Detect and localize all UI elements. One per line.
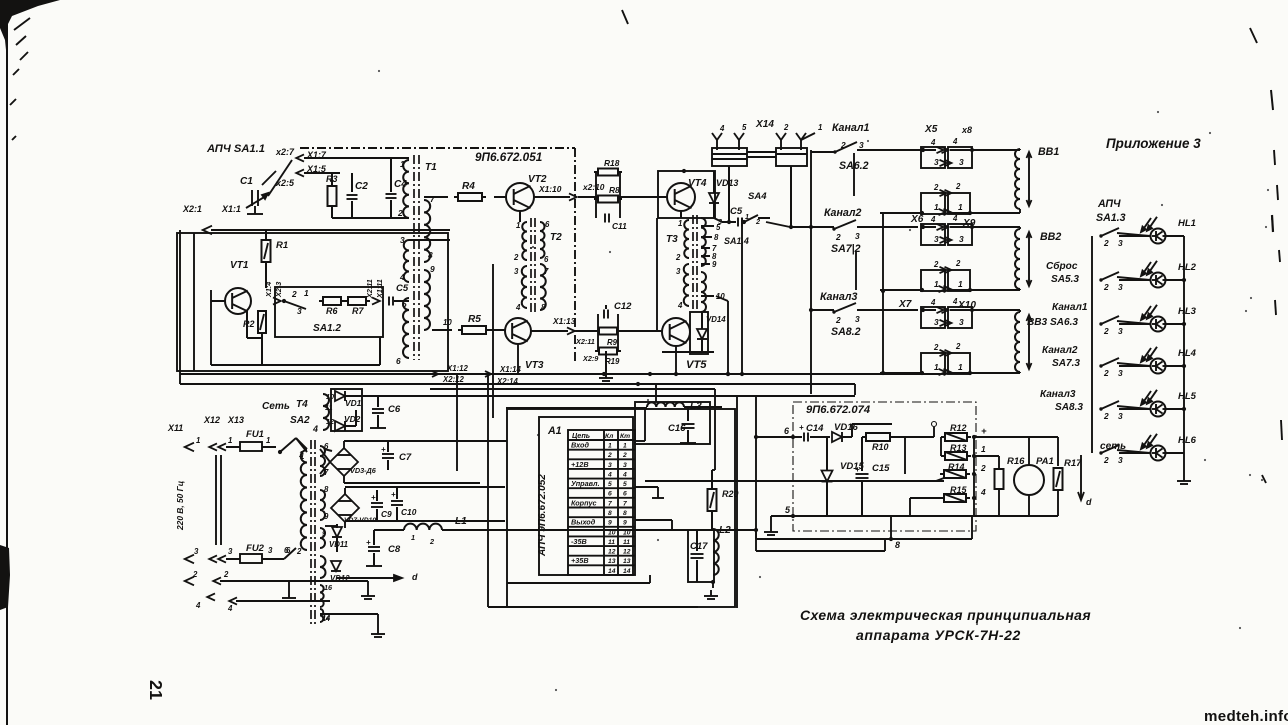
svg-text:Канал3: Канал3 [1040, 389, 1076, 400]
svg-text:R10: R10 [872, 442, 888, 452]
svg-text:9: 9 [430, 264, 435, 274]
svg-text:2: 2 [397, 208, 403, 218]
svg-text:+12В: +12В [571, 460, 589, 469]
svg-text:Выход: Выход [571, 518, 596, 527]
svg-text:3: 3 [934, 157, 939, 167]
svg-text:1: 1 [196, 436, 200, 445]
svg-text:1: 1 [981, 444, 986, 454]
svg-text:+: + [855, 465, 860, 474]
svg-text:1: 1 [516, 221, 520, 230]
svg-text:+: + [366, 538, 371, 547]
svg-text:R20: R20 [722, 489, 738, 499]
svg-text:9: 9 [712, 260, 717, 269]
svg-text:3: 3 [934, 234, 939, 244]
svg-text:1: 1 [623, 443, 627, 450]
svg-text:3: 3 [228, 547, 233, 556]
svg-text:8: 8 [428, 250, 433, 260]
svg-text:SA2: SA2 [290, 415, 310, 426]
svg-text:x2:7: x2:7 [275, 147, 295, 157]
svg-text:4: 4 [952, 214, 958, 223]
svg-text:X2:11: X2:11 [365, 279, 374, 299]
svg-text:3: 3 [1118, 368, 1123, 378]
svg-text:3: 3 [1118, 411, 1123, 421]
svg-text:12: 12 [623, 549, 631, 556]
svg-text:x2:5: x2:5 [275, 178, 295, 188]
svg-text:1: 1 [934, 362, 939, 372]
svg-text:1: 1 [745, 212, 749, 221]
svg-text:11: 11 [608, 539, 615, 546]
svg-text:Канал3: Канал3 [820, 291, 858, 303]
svg-text:X1:1: X1:1 [221, 204, 241, 214]
svg-text:T3: T3 [666, 234, 678, 245]
svg-text:R6: R6 [326, 306, 338, 316]
svg-text:HL6: HL6 [1178, 435, 1197, 446]
svg-text:13: 13 [623, 558, 631, 565]
svg-text:1: 1 [958, 362, 963, 372]
svg-text:-35В: -35В [571, 537, 587, 546]
svg-text:4: 4 [980, 487, 986, 497]
svg-text:VT3: VT3 [525, 360, 544, 371]
svg-text:HL5: HL5 [1178, 391, 1197, 402]
svg-text:1: 1 [678, 219, 682, 228]
svg-text:2: 2 [675, 253, 681, 262]
svg-text:7: 7 [430, 194, 435, 204]
svg-text:R17: R17 [1064, 458, 1082, 469]
svg-text:C2: C2 [355, 181, 368, 192]
svg-text:1: 1 [958, 279, 963, 289]
svg-text:Управл.: Управл. [571, 479, 600, 488]
svg-text:1: 1 [266, 436, 270, 445]
svg-text:R5: R5 [468, 314, 481, 325]
svg-text:5: 5 [608, 481, 612, 488]
svg-text:VD15: VD15 [840, 461, 865, 472]
svg-text:C16: C16 [668, 423, 686, 434]
svg-text:1: 1 [228, 436, 232, 445]
svg-text:3: 3 [1118, 238, 1123, 248]
svg-text:X5: X5 [924, 124, 938, 135]
svg-text:R19: R19 [605, 357, 620, 366]
svg-text:4: 4 [312, 424, 318, 434]
svg-text:L1: L1 [455, 516, 467, 527]
svg-text:4: 4 [952, 137, 958, 146]
svg-text:x8: x8 [961, 125, 972, 135]
svg-text:7: 7 [544, 267, 549, 276]
svg-text:сеть: сеть [1100, 441, 1126, 452]
svg-text:2: 2 [783, 123, 789, 132]
svg-text:3: 3 [400, 235, 405, 245]
svg-text:Канал1: Канал1 [1052, 302, 1088, 313]
svg-text:14: 14 [608, 568, 616, 575]
svg-text:R15: R15 [950, 485, 967, 495]
svg-text:HL3: HL3 [1178, 306, 1197, 317]
svg-text:R13: R13 [950, 443, 966, 453]
svg-text:X1:4: X1:4 [264, 282, 273, 298]
svg-text:SA1.2: SA1.2 [313, 323, 341, 334]
svg-text:21: 21 [146, 680, 166, 700]
svg-text:2: 2 [1103, 368, 1109, 378]
svg-text:X1:10: X1:10 [538, 184, 562, 194]
svg-text:3: 3 [855, 231, 860, 241]
svg-text:2: 2 [1103, 238, 1109, 248]
svg-text:9П6.672.074: 9П6.672.074 [806, 404, 871, 416]
svg-text:3: 3 [859, 140, 864, 150]
svg-text:SA8.3: SA8.3 [1055, 402, 1083, 413]
svg-text:8: 8 [541, 303, 546, 312]
svg-text:+: + [799, 423, 804, 432]
svg-text:X14: X14 [755, 119, 774, 130]
svg-text:VD14: VD14 [706, 315, 726, 324]
svg-text:2: 2 [513, 253, 519, 262]
svg-text:4: 4 [930, 215, 936, 224]
svg-text:R8: R8 [609, 185, 620, 195]
svg-text:3: 3 [934, 317, 939, 327]
svg-text:3: 3 [268, 546, 273, 555]
svg-text:2: 2 [980, 463, 986, 473]
svg-text:VD2: VD2 [344, 414, 361, 424]
svg-text:ВВ1: ВВ1 [1038, 146, 1059, 158]
svg-text:Канал1: Канал1 [832, 122, 870, 134]
svg-text:АПЧ 9П6.672.052: АПЧ 9П6.672.052 [537, 474, 548, 557]
svg-text:C5: C5 [396, 283, 409, 294]
svg-text:VT4: VT4 [688, 178, 707, 189]
svg-text:3: 3 [676, 267, 681, 276]
svg-text:L2: L2 [719, 525, 731, 536]
svg-text:АПЧ: АПЧ [1097, 198, 1121, 210]
svg-text:1: 1 [958, 202, 963, 212]
svg-text:3: 3 [1118, 326, 1123, 336]
svg-text:А1: А1 [547, 425, 562, 437]
svg-text:2: 2 [835, 315, 841, 325]
svg-text:C5: C5 [730, 206, 743, 217]
svg-text:8: 8 [608, 510, 612, 517]
svg-text:ВВ3 SA6.3: ВВ3 SA6.3 [1027, 317, 1078, 328]
svg-text:14: 14 [322, 614, 330, 623]
svg-text:4: 4 [622, 471, 627, 478]
svg-text:2: 2 [933, 343, 939, 352]
svg-text:3: 3 [959, 317, 964, 327]
svg-text:T4: T4 [296, 399, 308, 410]
svg-text:4: 4 [930, 138, 936, 147]
svg-text:C14: C14 [806, 423, 824, 434]
svg-text:10: 10 [608, 529, 616, 536]
svg-text:Вход: Вход [571, 441, 589, 450]
svg-text:X13: X13 [227, 415, 244, 425]
svg-text:2: 2 [1103, 282, 1109, 292]
svg-text:2: 2 [223, 570, 229, 579]
svg-text:4: 4 [719, 124, 725, 133]
svg-text:3: 3 [514, 267, 519, 276]
svg-text:1: 1 [818, 123, 822, 132]
svg-text:2: 2 [955, 182, 961, 191]
svg-text:X1:13: X1:13 [552, 316, 576, 326]
svg-text:SA1.4: SA1.4 [724, 236, 749, 246]
svg-text:SA7.3: SA7.3 [1052, 358, 1080, 369]
svg-text:+: + [371, 493, 376, 502]
svg-text:1: 1 [304, 288, 309, 298]
svg-text:220 В, 50 Гц: 220 В, 50 Гц [175, 481, 185, 531]
svg-text:R7: R7 [352, 306, 364, 316]
svg-text:8: 8 [714, 233, 719, 242]
svg-text:SA4: SA4 [748, 191, 767, 202]
svg-text:+35В: +35В [571, 556, 589, 565]
svg-text:2: 2 [840, 140, 846, 150]
svg-text:X2:12: X2:12 [442, 375, 465, 384]
svg-text:4: 4 [195, 601, 201, 610]
svg-text:6: 6 [623, 491, 627, 498]
svg-text:+: + [981, 426, 987, 437]
svg-text:VT1: VT1 [230, 260, 249, 271]
svg-text:SA5.3: SA5.3 [1051, 274, 1079, 285]
svg-text:2: 2 [933, 260, 939, 269]
svg-text:SA1.3: SA1.3 [1096, 212, 1126, 224]
svg-text:5: 5 [623, 481, 627, 488]
svg-text:6: 6 [544, 255, 549, 264]
svg-text:12: 12 [326, 417, 334, 426]
svg-text:d: d [1086, 497, 1092, 507]
svg-text:8: 8 [895, 540, 900, 550]
svg-text:C8: C8 [388, 544, 401, 555]
svg-text:C10: C10 [401, 507, 417, 517]
svg-text:C9: C9 [381, 509, 392, 519]
svg-text:T2: T2 [550, 232, 562, 243]
svg-text:Сброс: Сброс [1046, 260, 1078, 272]
svg-text:VD11: VD11 [329, 540, 348, 549]
svg-text:3: 3 [1118, 455, 1123, 465]
svg-text:2: 2 [1103, 411, 1109, 421]
svg-text:9: 9 [608, 520, 612, 527]
svg-text:4: 4 [930, 298, 936, 307]
svg-text:Канал2: Канал2 [1042, 345, 1078, 356]
svg-text:9: 9 [324, 512, 329, 521]
svg-text:C7: C7 [399, 452, 412, 463]
svg-text:13: 13 [608, 558, 616, 565]
svg-text:Схема электрическая принципи: Схема электрическая принципиальная [800, 607, 1091, 623]
svg-text:10: 10 [443, 318, 452, 327]
svg-text:Корпус: Корпус [571, 498, 597, 507]
svg-text:VD13: VD13 [716, 178, 738, 188]
svg-text:2: 2 [291, 289, 297, 299]
svg-text:3: 3 [959, 157, 964, 167]
svg-text:1: 1 [411, 533, 415, 542]
svg-text:d: d [412, 572, 418, 582]
svg-text:R9: R9 [607, 338, 618, 347]
svg-text:C6: C6 [388, 404, 401, 415]
svg-text:1: 1 [299, 450, 303, 459]
svg-text:C15: C15 [872, 463, 890, 474]
svg-text:3: 3 [1118, 282, 1123, 292]
svg-text:2: 2 [1103, 326, 1109, 336]
svg-text:2: 2 [835, 232, 841, 242]
svg-text:+: + [381, 445, 386, 454]
svg-text:2: 2 [955, 342, 961, 351]
svg-text:R18: R18 [604, 158, 620, 168]
svg-text:9: 9 [623, 520, 627, 527]
svg-text:2: 2 [607, 452, 612, 459]
svg-text:PA1: PA1 [1036, 456, 1054, 467]
svg-text:C17: C17 [690, 541, 708, 552]
svg-text:7: 7 [623, 500, 627, 507]
svg-text:C12: C12 [614, 301, 632, 312]
svg-text:2: 2 [933, 183, 939, 192]
svg-text:14: 14 [623, 568, 631, 575]
svg-text:+: + [391, 490, 396, 499]
svg-text:VD3-Д6: VD3-Д6 [350, 466, 377, 475]
svg-text:12: 12 [608, 549, 616, 556]
svg-text:аппарата УРСК-7Н-22: аппарата УРСК-7Н-22 [856, 627, 1021, 643]
svg-text:1: 1 [400, 159, 405, 169]
svg-text:FU1: FU1 [246, 429, 264, 440]
svg-text:2: 2 [955, 259, 961, 268]
svg-text:1: 1 [934, 202, 939, 212]
svg-text:VT5: VT5 [686, 359, 707, 371]
svg-text:ВВ2: ВВ2 [1040, 231, 1061, 243]
svg-text:2: 2 [622, 452, 627, 459]
svg-text:1: 1 [934, 279, 939, 289]
svg-text:2: 2 [296, 547, 302, 556]
svg-text:R12: R12 [950, 423, 966, 433]
svg-text:SA8.2: SA8.2 [831, 326, 861, 338]
svg-text:C11: C11 [612, 221, 627, 231]
svg-text:3: 3 [959, 234, 964, 244]
svg-text:C1: C1 [240, 176, 253, 187]
svg-text:8: 8 [623, 510, 627, 517]
svg-text:Цепь: Цепь [572, 431, 590, 440]
svg-text:X11: X11 [167, 423, 183, 433]
svg-text:3: 3 [608, 462, 612, 469]
svg-text:X12: X12 [203, 415, 220, 425]
svg-text:SA7|2: SA7|2 [831, 243, 861, 255]
svg-text:11: 11 [623, 539, 630, 546]
svg-text:Кт: Кт [620, 433, 630, 440]
svg-text:3: 3 [718, 217, 722, 226]
svg-text:4: 4 [677, 301, 683, 310]
svg-text:6: 6 [284, 546, 289, 555]
svg-text:16: 16 [324, 583, 333, 592]
svg-text:8: 8 [324, 485, 329, 494]
svg-text:10: 10 [326, 392, 334, 401]
svg-text:HL4: HL4 [1178, 348, 1197, 359]
svg-text:X1:12: X1:12 [446, 364, 469, 373]
svg-text:X2:9: X2:9 [582, 354, 599, 363]
svg-text:АПЧ SA1.1: АПЧ SA1.1 [206, 143, 265, 155]
svg-text:VD1: VD1 [345, 398, 362, 408]
svg-text:HL1: HL1 [1178, 218, 1196, 229]
svg-text:4: 4 [952, 297, 958, 306]
svg-text:3: 3 [855, 314, 860, 324]
svg-text:T1: T1 [425, 162, 437, 173]
svg-text:2: 2 [429, 537, 434, 546]
svg-text:SA6.2: SA6.2 [839, 160, 869, 172]
svg-text:x2:10: x2:10 [582, 182, 605, 192]
svg-text:HL2: HL2 [1178, 262, 1197, 273]
svg-text:2: 2 [192, 570, 198, 579]
svg-text:X2:14: X2:14 [496, 377, 519, 386]
svg-text:X2:1: X2:1 [182, 204, 202, 214]
svg-text:4: 4 [607, 471, 612, 478]
svg-text:6: 6 [396, 356, 401, 366]
svg-text:4: 4 [227, 604, 233, 613]
svg-text:4: 4 [515, 303, 521, 312]
svg-text:R16: R16 [1007, 456, 1025, 467]
svg-text:1: 1 [608, 443, 612, 450]
svg-text:Кл: Кл [605, 433, 614, 440]
svg-text:X1:11: X1:11 [375, 279, 384, 299]
svg-text:R2: R2 [243, 319, 254, 329]
svg-text:6: 6 [608, 491, 612, 498]
svg-text:R1: R1 [276, 240, 288, 251]
svg-text:4: 4 [399, 272, 405, 282]
svg-text:Канал2: Канал2 [824, 207, 862, 219]
svg-text:5: 5 [742, 123, 747, 132]
svg-text:Сеть: Сеть [262, 401, 290, 412]
svg-text:3: 3 [194, 547, 199, 556]
svg-text:2: 2 [1103, 455, 1109, 465]
svg-text:Приложение 3: Приложение 3 [1106, 136, 1201, 151]
svg-text:6: 6 [545, 220, 550, 229]
svg-text:7: 7 [608, 500, 612, 507]
svg-text:9П6.672.051: 9П6.672.051 [475, 151, 542, 164]
svg-text:3: 3 [623, 462, 627, 469]
svg-text:R4: R4 [462, 181, 475, 192]
svg-text:R14: R14 [948, 462, 964, 472]
svg-text:X7: X7 [898, 299, 912, 310]
svg-text:10: 10 [623, 529, 631, 536]
svg-text:X2:11: X2:11 [575, 337, 595, 346]
svg-text:FU2: FU2 [246, 543, 265, 554]
svg-text:medteh.info: medteh.info [1204, 708, 1288, 725]
